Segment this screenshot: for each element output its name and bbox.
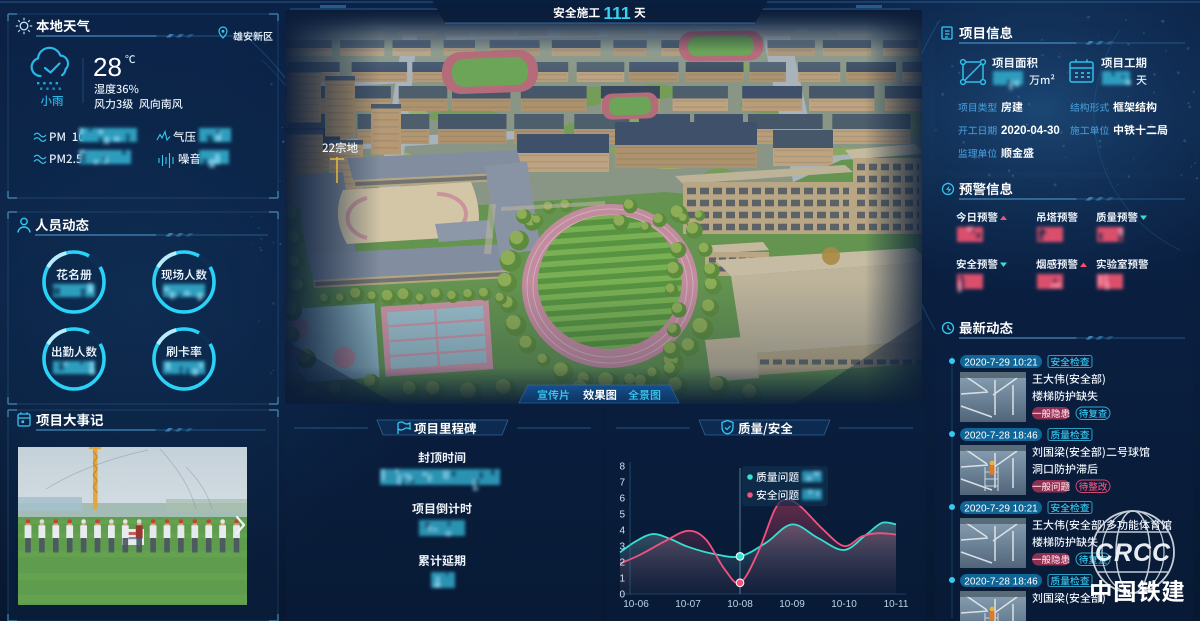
svg-text:10-06: 10-06 <box>623 599 649 610</box>
svg-text:10-11: 10-11 <box>884 599 909 610</box>
svg-text:2: 2 <box>619 558 625 569</box>
svg-text:10-09: 10-09 <box>779 599 805 610</box>
svg-text:2020-7-29 10:21: 2020-7-29 10:21 <box>964 358 1038 369</box>
svg-text:8: 8 <box>619 462 625 473</box>
svg-text:2020-7-29 10:21: 2020-7-29 10:21 <box>964 504 1038 515</box>
svg-text:111: 111 <box>603 3 631 23</box>
svg-text:5: 5 <box>619 510 625 521</box>
svg-text:2020-04-30: 2020-04-30 <box>1001 125 1060 137</box>
svg-text:2020-7-28 18:46: 2020-7-28 18:46 <box>964 577 1038 588</box>
svg-text:7: 7 <box>619 478 625 489</box>
svg-text:CRCC: CRCC <box>1095 539 1171 567</box>
svg-text:1: 1 <box>619 574 625 585</box>
svg-text:10-07: 10-07 <box>675 599 701 610</box>
svg-text:6: 6 <box>619 494 625 505</box>
svg-text:4: 4 <box>619 526 625 537</box>
svg-text:2020-7-28 18:46: 2020-7-28 18:46 <box>964 431 1038 442</box>
svg-text:10-10: 10-10 <box>831 599 857 610</box>
svg-text:3: 3 <box>619 542 625 553</box>
svg-text:28: 28 <box>93 52 122 82</box>
svg-text:10-08: 10-08 <box>727 599 753 610</box>
